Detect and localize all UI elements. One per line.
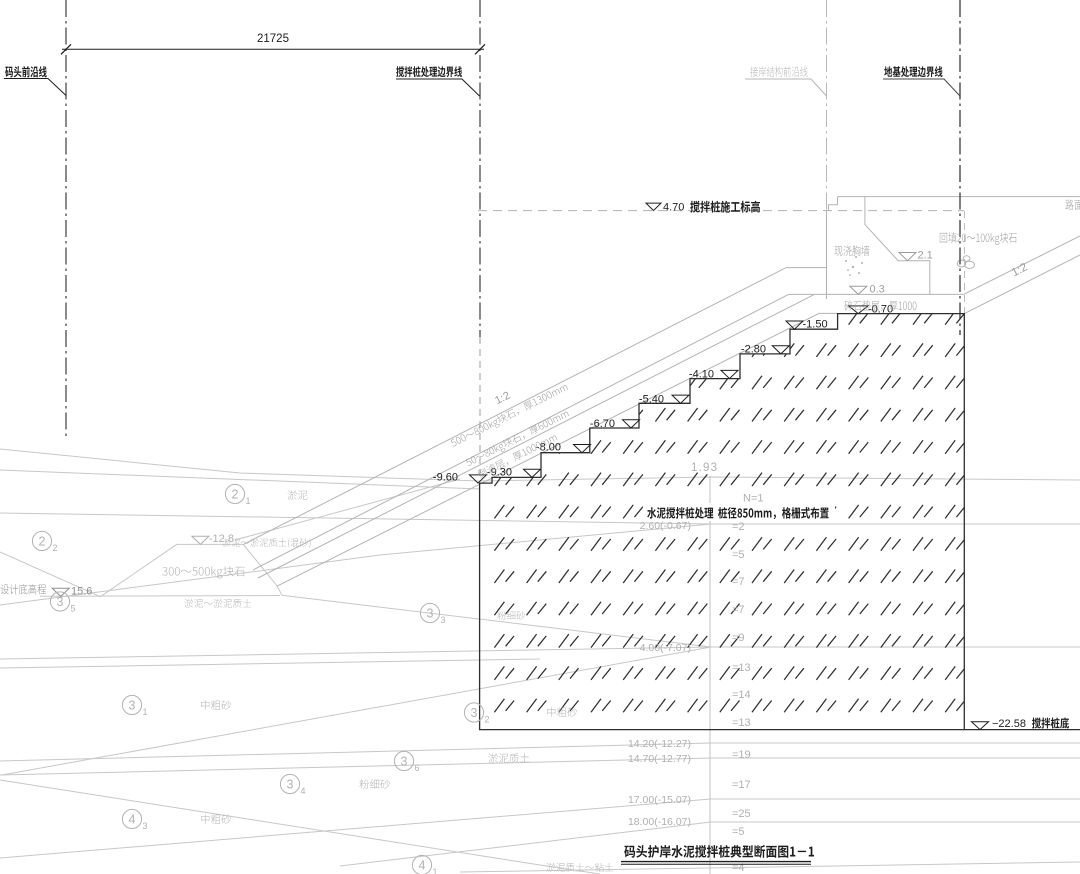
svg-text:2: 2	[232, 488, 239, 502]
svg-text:3: 3	[143, 821, 148, 831]
svg-text:-2.80: -2.80	[741, 344, 766, 356]
svg-text:=5: =5	[732, 549, 745, 561]
svg-text:=2: =2	[732, 521, 745, 533]
svg-text:-5.40: -5.40	[639, 394, 664, 406]
svg-text:4.00(-7.07): 4.00(-7.07)	[640, 642, 691, 654]
svg-text:=14: =14	[732, 689, 751, 701]
svg-text:2.1: 2.1	[918, 250, 933, 262]
svg-text:3: 3	[129, 699, 136, 713]
svg-text:0.3: 0.3	[870, 284, 885, 296]
svg-text:-6.70: -6.70	[590, 418, 615, 430]
svg-text:1:2: 1:2	[1010, 261, 1030, 279]
svg-text:14.70(-12.77): 14.70(-12.77)	[628, 753, 691, 765]
svg-text:3: 3	[471, 706, 478, 720]
svg-text:1: 1	[143, 707, 148, 717]
svg-text:14.20(-12.27): 14.20(-12.27)	[628, 738, 691, 750]
svg-text:=25: =25	[732, 808, 751, 820]
svg-text:2: 2	[53, 543, 58, 553]
svg-text:1: 1	[433, 867, 438, 874]
svg-text:=19: =19	[732, 749, 751, 761]
svg-text:4: 4	[419, 859, 426, 873]
svg-text:2.60(-0.67): 2.60(-0.67)	[640, 520, 691, 532]
svg-text:=5: =5	[732, 826, 745, 838]
svg-text:21725: 21725	[257, 33, 289, 45]
svg-text:1.93: 1.93	[691, 462, 718, 474]
svg-text:1:2: 1:2	[493, 390, 512, 408]
svg-text:=7: =7	[732, 576, 745, 588]
svg-text:17.00(-15.07): 17.00(-15.07)	[628, 794, 691, 806]
svg-text:5: 5	[71, 604, 76, 614]
svg-text:=13: =13	[732, 717, 751, 729]
svg-text:-1.50: -1.50	[803, 319, 828, 331]
svg-text:=7: =7	[732, 604, 745, 616]
svg-text:3: 3	[427, 607, 434, 621]
svg-text:-12.8: -12.8	[209, 533, 234, 545]
svg-text:=9: =9	[732, 632, 745, 644]
svg-text:18.00(-16.07): 18.00(-16.07)	[628, 816, 691, 828]
svg-text:4: 4	[129, 813, 136, 827]
svg-text:3: 3	[57, 595, 64, 609]
svg-text:=13: =13	[732, 662, 751, 674]
svg-text:-9.60: -9.60	[433, 472, 458, 484]
svg-text:4: 4	[301, 786, 306, 796]
svg-text:=17: =17	[732, 779, 751, 791]
svg-text:1: 1	[246, 496, 251, 506]
svg-text:4.70: 4.70	[663, 202, 684, 214]
svg-text:6: 6	[415, 763, 420, 773]
svg-text:15.6: 15.6	[71, 586, 92, 598]
svg-text:2: 2	[485, 715, 490, 725]
svg-text:-4.10: -4.10	[689, 369, 714, 381]
svg-text:−22.58: −22.58	[992, 718, 1026, 730]
svg-text:3: 3	[441, 615, 446, 625]
svg-text:N=1: N=1	[743, 493, 764, 505]
svg-text:3: 3	[401, 755, 408, 769]
svg-text:3: 3	[287, 778, 294, 792]
svg-text:2: 2	[39, 535, 46, 549]
